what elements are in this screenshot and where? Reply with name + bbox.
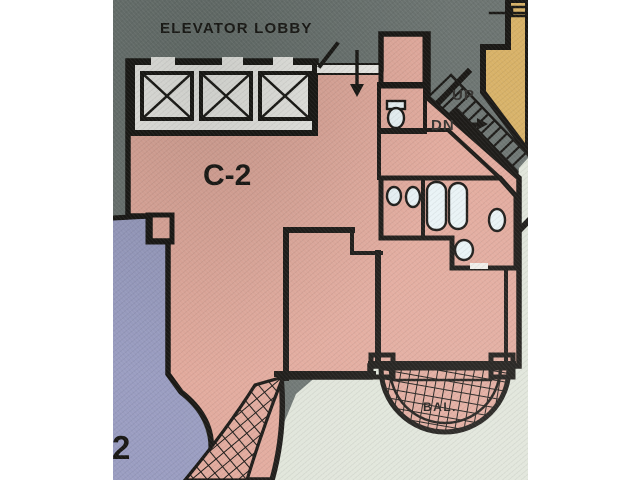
bathroom-door-gap [470, 263, 488, 269]
sink-icon [387, 187, 401, 205]
elevator-door-gap [273, 57, 293, 67]
balcony-label: BAL. [423, 400, 457, 414]
floorplan-svg: ELEVATOR LOBBY C-2 UP DN BAL. 2 [0, 0, 640, 480]
boundary-wall [113, 216, 150, 218]
sink-icon [406, 187, 420, 207]
sink-icon [455, 240, 473, 260]
elevator-door-gap [151, 57, 175, 67]
elevator-door-gap [222, 57, 243, 67]
stairs-dn-label: DN [431, 117, 455, 134]
toilet-icon [388, 108, 404, 128]
stairs-up-label: UP [452, 87, 475, 104]
elevator-bank [129, 57, 318, 136]
elevator-lobby-label: ELEVATOR LOBBY [160, 20, 313, 37]
bathtub-icon [427, 182, 446, 230]
unit-c2-label: C-2 [203, 159, 251, 192]
floorplan-photo: ELEVATOR LOBBY C-2 UP DN BAL. 2 [0, 0, 640, 480]
shower-icon [449, 183, 467, 229]
toilet-icon [489, 209, 505, 231]
adjacent-unit-label: 2 [112, 429, 130, 466]
